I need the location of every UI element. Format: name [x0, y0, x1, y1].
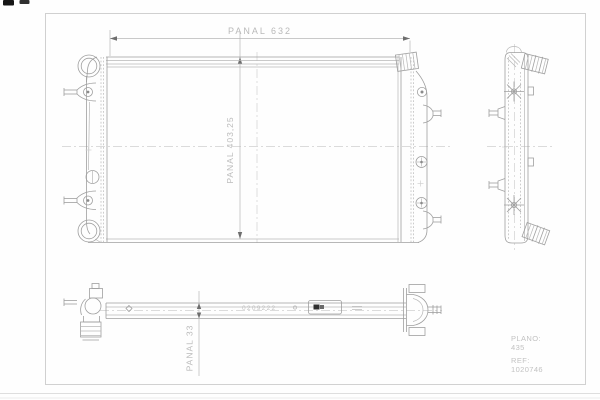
mount-pin-star-top: [504, 82, 524, 102]
ref-label: REF:: [511, 356, 530, 365]
center-mark: [418, 181, 424, 187]
side-tab-right-top: [528, 87, 534, 95]
dim-panel-depth: PANAL 33: [185, 291, 202, 376]
dim-arrow-up: [197, 303, 201, 309]
dim-height-label: PANAL 403,25: [225, 116, 235, 183]
side-tab-right-bottom: [528, 158, 534, 166]
scan-mark: [3, 0, 14, 6]
radiator-core: [88, 57, 419, 243]
side-tab-left-bottom: [489, 179, 505, 192]
mount-bracket-bottom-right: [423, 211, 441, 229]
title-block: PLANO: 435 REF: 1020746: [511, 334, 543, 374]
small-mark: [293, 306, 296, 309]
filler-neck-front: [395, 52, 418, 71]
hose-pipe: [81, 322, 102, 337]
drawing-frame: [0, 0, 600, 398]
dim-arrow-left: [110, 36, 117, 40]
dim-arrow-right: [403, 36, 410, 40]
dim-panel-width: PANAL 632: [110, 26, 410, 56]
ref-value: 1020746: [511, 365, 543, 374]
bottom-view: 0209222 PANAL 33: [64, 284, 442, 377]
front-view: PANAL 632 PANAL 403,25: [62, 26, 452, 243]
stamped-part-number: 0209222: [242, 305, 276, 312]
screw-head: [416, 198, 427, 209]
dim-arrow-down: [197, 313, 201, 319]
right-tank: [395, 52, 441, 242]
dim-depth-label: PANAL 33: [185, 325, 195, 372]
top-dome: [507, 47, 522, 53]
bottom-inlet-fitting: [64, 284, 103, 341]
plano-value: 435: [511, 343, 525, 352]
left-tank: [64, 55, 104, 242]
mount-bracket-top-right: [423, 105, 441, 123]
filler-neck-side: [521, 53, 548, 75]
mount-pin-star-bottom: [504, 195, 524, 215]
mount-bracket-top-left: [64, 83, 96, 101]
bottom-outlet-connector: [404, 285, 442, 336]
outlet-pipe-side: [522, 222, 550, 246]
dim-panel-height: PANAL 403,25: [225, 31, 242, 239]
screw-head: [416, 157, 427, 168]
scan-mark: [20, 0, 30, 4]
side-view: [487, 44, 552, 250]
dim-width-label: PANAL 632: [228, 26, 292, 36]
mount-bracket-bottom-left: [64, 191, 96, 210]
plano-label: PLANO:: [511, 334, 541, 343]
dim-arrow-down: [238, 232, 242, 239]
radiator-technical-drawing: PANAL 632 PANAL 403,25: [0, 0, 600, 400]
drawing-svg: PANAL 632 PANAL 403,25: [0, 0, 600, 400]
side-tab-left-top: [489, 107, 505, 120]
